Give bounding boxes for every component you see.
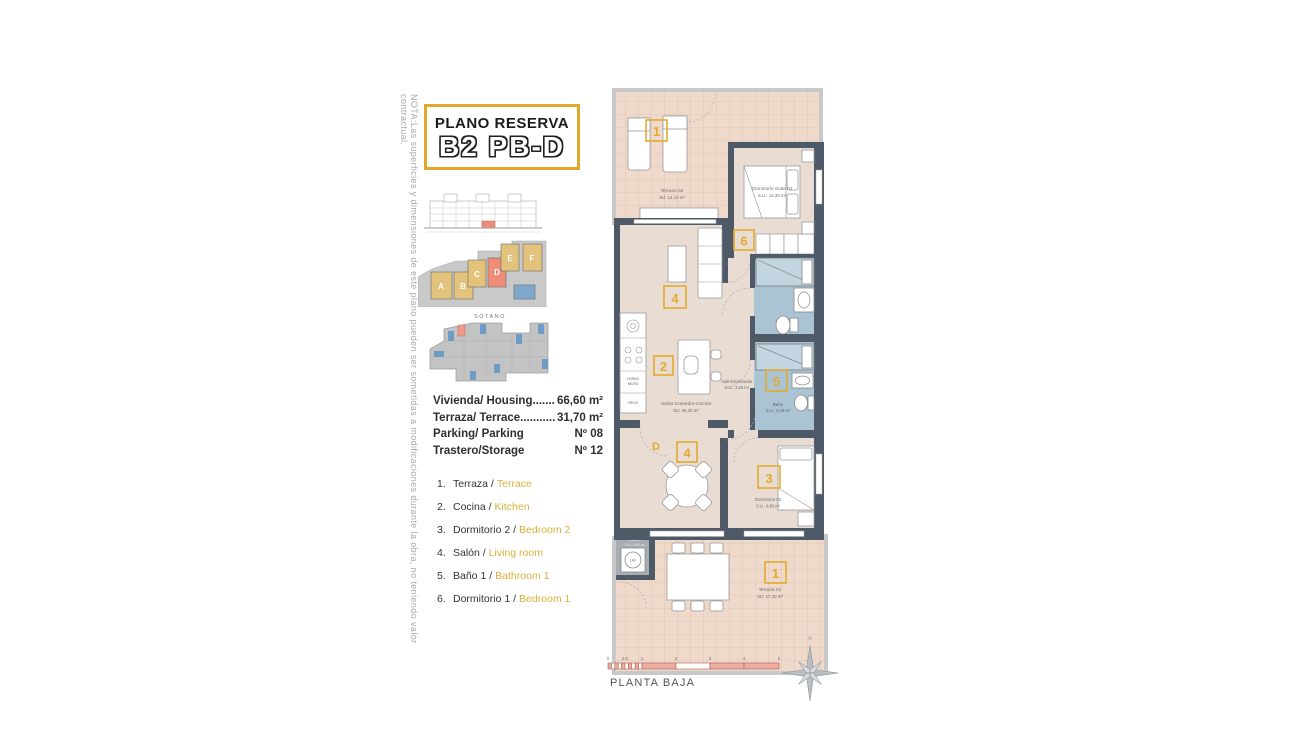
floor-label: PLANTA BAJA	[610, 677, 695, 689]
building-elevation-diagram	[424, 192, 542, 238]
terrace01-area: SU: 17,40 m²	[757, 594, 783, 599]
legend-en: Bedroom 1	[519, 593, 570, 605]
title-block: PLANO RESERVA B2 PB-D	[424, 104, 580, 170]
badge-terrace01: 1	[772, 566, 779, 581]
legend-num: 1.	[437, 478, 453, 490]
suite-area: S.U.: 14,30 m²	[758, 193, 787, 198]
legend-es: Cocina /	[453, 501, 492, 513]
legend-num: 3.	[437, 524, 453, 536]
sofa	[698, 228, 722, 298]
summary-row: Trastero/Storage Nº 12	[433, 443, 603, 460]
floorplan-sheet: { "note_vertical": "NOTA:Las superficies…	[0, 0, 1290, 755]
summary-row: Parking/ Parking Nº 08	[433, 426, 603, 443]
legend-item: 1. Terraza / Terrace	[437, 478, 607, 490]
terrace02-name: Terraza 02	[661, 188, 684, 194]
legend-es: Baño 1 /	[453, 570, 492, 582]
galeria-area: S.U.: 0,80 m²	[625, 543, 645, 547]
svg-text:1: 1	[641, 656, 644, 661]
site-plan-diagram: A B C D E F	[418, 239, 548, 307]
svg-text:0: 0	[607, 656, 610, 661]
suite-name: Dormitorio Suite 01	[751, 186, 792, 192]
block-label-e: E	[507, 254, 513, 263]
terrace01-name: Terraza 01	[759, 587, 782, 593]
unit-code: B2 PB-D	[427, 132, 577, 162]
legend-en: Bedroom 2	[519, 524, 570, 536]
terrace-bench	[640, 208, 718, 219]
block-label-a: A	[438, 282, 444, 291]
bano-area: S.U.: 3,40 m²	[766, 408, 791, 413]
block-label-f: F	[530, 254, 535, 263]
block-label-d: D	[494, 268, 500, 277]
legend-num: 5.	[437, 570, 453, 582]
lav-label: LAV	[630, 559, 637, 563]
micro-label: MICRO	[628, 382, 639, 386]
coffee-table	[668, 246, 686, 282]
pool-block	[514, 285, 535, 299]
scale-bar	[608, 663, 779, 669]
summary-value: 66,60 m²	[557, 393, 603, 410]
badge-suite: 6	[740, 234, 747, 249]
legend-num: 6.	[437, 593, 453, 605]
summary-value: Nº 12	[575, 443, 604, 460]
legend-es: Salón /	[453, 547, 486, 559]
suite-wardrobe	[756, 234, 814, 254]
summary-label: Trastero/Storage	[433, 443, 524, 460]
svg-text:2: 2	[675, 656, 678, 661]
svg-text:3: 3	[709, 656, 712, 661]
outdoor-dining-set	[667, 543, 729, 611]
summary-row: Terraza/ Terrace........... 31,70 m²	[433, 410, 603, 427]
dorm02-name: Dormitorio 02	[755, 497, 782, 502]
vertical-disclaimer-note: NOTA:Las superficies y dimensiones de es…	[399, 94, 419, 649]
dorm02-area: S.U.: 8,80 m²	[756, 504, 781, 509]
badge-bathroom: 5	[773, 374, 780, 389]
terrace02-area: SU: 14,10 m²	[659, 195, 685, 200]
svg-text:5: 5	[778, 656, 781, 661]
legend-item: 3. Dormitorio 2 / Bedroom 2	[437, 524, 607, 536]
galeria: LAV Galería S.U.: 0,80 m²	[616, 533, 655, 580]
door-letter: D	[652, 441, 660, 453]
unit-summary: Vivienda/ Housing....... 66,60 m² Terraz…	[433, 393, 603, 459]
svg-text:0.5: 0.5	[622, 656, 629, 661]
svg-text:N: N	[808, 636, 812, 642]
summary-label: Parking/ Parking	[433, 426, 524, 443]
salon-area: SU: 26,30 m²	[673, 408, 699, 413]
badge-dining: 4	[683, 446, 691, 461]
legend-en: Bathroom 1	[495, 570, 549, 582]
legend-es: Terraza /	[453, 478, 494, 490]
legend-num: 4.	[437, 547, 453, 559]
plan-footer: 0 0.5 1 2 3 4 5 PLANTA BAJA N	[600, 628, 850, 718]
badge-living: 4	[671, 291, 679, 306]
badge-terrace02: 1	[653, 124, 660, 139]
floor-plan: 1 Terraza 02 SU: 14,10 m² 1 Terraza 01 S…	[612, 88, 832, 678]
sotano-label: SÓTANO	[474, 313, 506, 320]
legend-item: 2. Cocina / Kitchen	[437, 501, 607, 513]
highlighted-unit-cell	[482, 221, 495, 228]
bano-name: Baño	[773, 402, 784, 407]
summary-row: Vivienda/ Housing....... 66,60 m²	[433, 393, 603, 410]
legend-item: 6. Dormitorio 1 / Bedroom 1	[437, 593, 607, 605]
badge-kitchen: 2	[660, 359, 667, 374]
frigo-label: FRIGO	[628, 401, 639, 405]
horno-label: HORNO	[627, 377, 639, 381]
hall-name: Hall-Distribuidor	[721, 379, 753, 384]
legend-en: Kitchen	[495, 501, 530, 513]
hall-area: S.U.: 3,50 m²	[725, 385, 750, 390]
salon-name: Salón-Comedor-Cocina	[661, 401, 711, 407]
badge-bedroom2: 3	[765, 471, 772, 486]
legend-es: Dormitorio 1 /	[453, 593, 516, 605]
legend-num: 2.	[437, 501, 453, 513]
scale-ticks: 0 0.5 1 2 3 4 5	[607, 656, 781, 661]
compass-rose-icon: N	[782, 636, 838, 701]
legend-item: 4. Salón / Living room	[437, 547, 607, 559]
legend-es: Dormitorio 2 /	[453, 524, 516, 536]
block-label-b: B	[460, 282, 466, 291]
summary-value: 31,70 m²	[557, 410, 603, 427]
summary-value: Nº 08	[575, 426, 604, 443]
highlighted-storage-spot	[458, 325, 465, 336]
room-legend: 1. Terraza / Terrace 2. Cocina / Kitchen…	[437, 478, 607, 616]
svg-text:4: 4	[743, 656, 746, 661]
legend-en: Terrace	[497, 478, 532, 490]
basement-diagram: SÓTANO	[424, 309, 556, 389]
kitchen-counter	[620, 313, 646, 413]
legend-item: 5. Baño 1 / Bathroom 1	[437, 570, 607, 582]
summary-label: Terraza/ Terrace...........	[433, 410, 555, 427]
plan-title: PLANO RESERVA	[427, 115, 577, 132]
legend-en: Living room	[489, 547, 543, 559]
summary-label: Vivienda/ Housing.......	[433, 393, 555, 410]
block-label-c: C	[474, 270, 480, 279]
